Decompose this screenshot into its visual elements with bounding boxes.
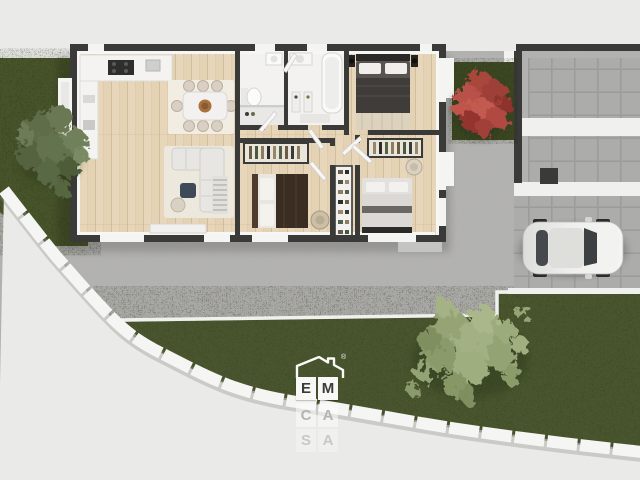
- shower-column-1: [292, 92, 300, 112]
- shower-tray: [240, 108, 284, 125]
- logo-reflection-sa: S A: [296, 429, 338, 452]
- bath-mat: [300, 114, 330, 123]
- window-bay-right-2: [446, 152, 454, 186]
- headboard-2: [252, 174, 258, 228]
- white-band-1: [520, 118, 640, 136]
- driveway-wall: [514, 51, 522, 183]
- logo-letter-ghost: A: [318, 404, 338, 427]
- boundary-wall-top-right: [516, 44, 640, 51]
- emcasa-logo: ® E M C A S A: [294, 356, 350, 456]
- car-mirror-top: [585, 217, 592, 222]
- driveway-slab-1: [528, 58, 640, 118]
- tv-sideboard: [150, 224, 206, 233]
- wardrobe-3: [368, 139, 422, 157]
- hall-shelf: [335, 166, 352, 240]
- car-rear-glass: [536, 230, 548, 266]
- pouf: [171, 198, 185, 212]
- toilet: [247, 88, 261, 106]
- shower-glass: [240, 105, 284, 108]
- white-band-2: [514, 182, 640, 196]
- logo-letter-ghost: A: [318, 429, 338, 452]
- logo-house-outline: [294, 356, 348, 378]
- footboard-3: [362, 227, 412, 233]
- dining-set: [168, 80, 237, 134]
- logo-row-em: E M: [296, 377, 338, 400]
- logo-letter: E: [296, 377, 316, 400]
- shelf-frame: [335, 166, 352, 240]
- house: [58, 44, 454, 252]
- kitchen-sink: [146, 60, 160, 71]
- car-mirror-bottom: [585, 274, 592, 279]
- car-windshield: [584, 228, 597, 266]
- blanket-2: [276, 174, 308, 228]
- logo-letter-ghost: C: [296, 404, 316, 427]
- window-bay-right-1: [446, 58, 454, 98]
- shower-column-2: [304, 92, 312, 112]
- logo-reflection-ca: C A: [296, 404, 338, 427]
- cooktop: [108, 60, 134, 75]
- headboard-1: [356, 54, 410, 61]
- registered-trademark: ®: [341, 354, 346, 361]
- bedroom-1: [348, 54, 418, 130]
- back-step: [398, 242, 442, 252]
- carport-edge: [508, 288, 640, 294]
- wardrobe-2-clothes: [249, 146, 300, 159]
- car-roof: [549, 228, 584, 268]
- carport-post: [540, 168, 558, 184]
- logo-letter-ghost: S: [296, 429, 316, 452]
- logo-letter: M: [318, 377, 338, 400]
- car-hood: [599, 229, 619, 267]
- coffee-table: [180, 183, 196, 198]
- floor-plan-render: ® E M C A S A: [0, 0, 640, 480]
- car: [519, 217, 627, 279]
- background-top: [0, 0, 640, 51]
